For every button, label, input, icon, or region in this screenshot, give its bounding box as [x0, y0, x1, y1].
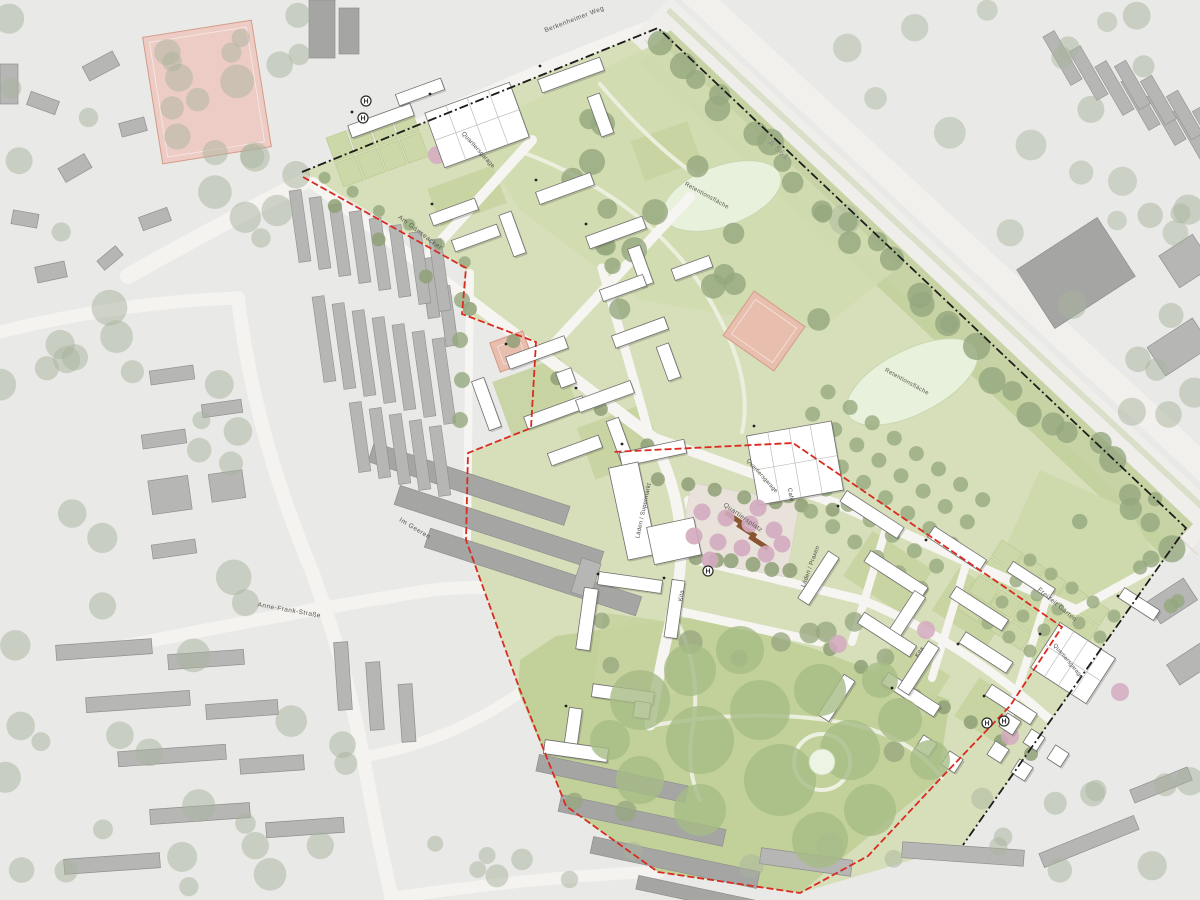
tree: [92, 290, 128, 326]
tree: [1159, 303, 1184, 328]
plaza-pink-tree: [710, 534, 727, 551]
tree: [1118, 398, 1146, 426]
tree: [164, 123, 190, 149]
street-tree: [651, 472, 665, 486]
orchard-tree: [909, 446, 924, 461]
park-tree-canopy: [674, 784, 726, 836]
bus-stop-letter: H: [705, 568, 710, 575]
plaza-pink-tree: [758, 546, 775, 563]
bus-stop-icon: H: [999, 716, 1009, 726]
entrance-dot: [535, 179, 538, 182]
garden-tree: [1017, 610, 1030, 623]
entrance-dot: [925, 539, 928, 542]
park-tree-canopy: [878, 698, 922, 742]
street-tree: [373, 205, 385, 217]
tree: [1120, 498, 1142, 520]
bus-stop-icon: H: [358, 113, 368, 123]
park-tree-canopy: [862, 662, 898, 698]
entrance-dot: [891, 687, 894, 690]
tree: [934, 117, 966, 149]
tree: [1051, 47, 1073, 69]
tree: [205, 370, 234, 399]
tree: [452, 412, 468, 428]
garden-tree: [1024, 645, 1037, 658]
tree: [1154, 773, 1177, 796]
street-tree: [681, 477, 695, 491]
street-tree: [419, 270, 433, 284]
orchard-tree: [871, 453, 886, 468]
tree: [1163, 220, 1189, 246]
orchard-tree: [847, 535, 862, 550]
park-tree-canopy: [590, 720, 630, 760]
tree: [1, 78, 22, 99]
tree: [615, 801, 636, 822]
entrance-dot: [539, 65, 542, 68]
orchard-tree: [865, 415, 880, 430]
orchard-tree: [975, 492, 990, 507]
tree: [230, 202, 261, 233]
entrance-dot: [565, 705, 568, 708]
entrance-dot: [663, 577, 666, 580]
tree: [864, 87, 887, 110]
tree: [452, 332, 468, 348]
tree: [469, 861, 486, 878]
park-pond: [809, 749, 835, 775]
bus-stop-icon: H: [361, 96, 371, 106]
garden-tree: [1045, 568, 1058, 581]
plaza-pink-tree: [686, 528, 703, 545]
tree: [1133, 55, 1155, 77]
tree: [838, 212, 857, 231]
tree: [6, 712, 35, 741]
tree: [6, 147, 33, 174]
tree: [1016, 130, 1047, 161]
tree: [602, 657, 619, 674]
bus-stop-letter: H: [360, 115, 365, 122]
orchard-tree: [916, 484, 931, 499]
tree: [135, 739, 163, 767]
pink-flowering-tree: [917, 621, 935, 639]
context-building: [148, 475, 192, 514]
street-tree: [764, 562, 779, 577]
tree: [161, 96, 184, 119]
park-tree-canopy: [616, 756, 664, 804]
park-tree-canopy: [794, 664, 846, 716]
tree: [262, 195, 293, 226]
tree: [884, 741, 905, 762]
tree: [782, 172, 804, 194]
garden-tree: [1108, 610, 1121, 623]
garden-tree: [1024, 554, 1037, 567]
garden-tree: [1066, 582, 1079, 595]
tree: [35, 356, 59, 380]
bus-stop-letter: H: [984, 720, 989, 727]
entrance-dot: [1039, 633, 1042, 636]
orchard-tree: [849, 437, 864, 452]
context-building: [309, 0, 335, 58]
street-tree: [737, 490, 751, 504]
orchard-tree: [856, 475, 871, 490]
tree: [1123, 2, 1151, 30]
orchard-tree: [931, 462, 946, 477]
tree: [9, 857, 35, 883]
tree: [192, 411, 210, 429]
tree: [1058, 291, 1086, 319]
pink-flowering-tree: [1111, 683, 1129, 701]
garden-tree: [996, 596, 1009, 609]
tree: [167, 842, 197, 872]
tree: [485, 864, 508, 887]
tree: [87, 523, 117, 553]
tree: [454, 372, 470, 388]
orchard-tree: [938, 499, 953, 514]
tree: [701, 274, 726, 299]
tree: [901, 14, 928, 41]
tree: [224, 417, 253, 446]
tree: [241, 142, 270, 171]
tree: [997, 219, 1024, 246]
entrance-dot: [1117, 595, 1120, 598]
tree: [1048, 858, 1073, 883]
entrance-dot: [351, 111, 354, 114]
orchard-tree: [821, 385, 836, 400]
tree: [1056, 422, 1078, 444]
street-tree: [724, 553, 739, 568]
park-tree-canopy: [844, 784, 896, 836]
tree: [221, 43, 241, 63]
tree: [1141, 513, 1160, 532]
orchard-tree: [887, 431, 902, 446]
tree: [285, 3, 310, 28]
entrance-dot: [597, 573, 600, 576]
tree: [561, 871, 578, 888]
tree: [705, 96, 731, 122]
tree: [609, 298, 630, 319]
tree: [275, 705, 307, 737]
bus-stop-letter: H: [363, 98, 368, 105]
street-tree: [782, 563, 797, 578]
tree: [1171, 594, 1185, 608]
tree: [79, 108, 98, 127]
street-tree: [328, 199, 342, 213]
pink-flowering-tree: [829, 635, 847, 653]
plaza-pink-tree: [694, 504, 711, 521]
garden-tree: [1003, 631, 1016, 644]
park-tree-canopy: [716, 626, 764, 674]
tree: [479, 847, 496, 864]
tree: [186, 88, 209, 111]
tree: [579, 149, 605, 175]
tree: [1044, 792, 1067, 815]
plaza-pink-tree: [734, 540, 751, 557]
tree: [334, 752, 357, 775]
tree: [0, 630, 30, 660]
tree: [1069, 160, 1093, 184]
park-tree-canopy: [730, 680, 790, 740]
tree: [963, 333, 990, 360]
orchard-tree: [894, 468, 909, 483]
garden-tree: [1087, 596, 1100, 609]
tree: [121, 360, 144, 383]
tree: [232, 589, 259, 616]
tree: [203, 140, 228, 165]
tree: [1158, 535, 1185, 562]
tree: [1077, 96, 1104, 123]
entrance-dot: [837, 505, 840, 508]
plaza-pink-tree: [750, 500, 767, 517]
entrance-dot: [505, 343, 508, 346]
tree: [1097, 12, 1117, 32]
tree: [1138, 851, 1167, 880]
tree: [100, 320, 133, 353]
tree: [1155, 401, 1182, 428]
tree: [838, 231, 861, 254]
tree: [833, 34, 862, 63]
tree: [58, 499, 87, 528]
site-plan-page: HHHHH Berkenheimer WegA 561Quartiersgara…: [0, 0, 1200, 900]
tree: [1107, 211, 1127, 231]
orchard-tree: [953, 477, 968, 492]
tree: [648, 31, 673, 56]
tree: [642, 199, 668, 225]
tree: [686, 70, 705, 89]
park-tree-canopy: [792, 812, 848, 868]
tree: [242, 832, 269, 859]
plaza-pink-tree: [774, 536, 791, 553]
tree: [282, 161, 310, 189]
entrance-dot: [621, 443, 624, 446]
tree: [940, 315, 958, 333]
orchard-tree: [929, 559, 944, 574]
tree: [52, 222, 71, 241]
tree: [994, 828, 1013, 847]
tree: [1085, 780, 1106, 801]
tree: [566, 793, 583, 810]
street-tree: [708, 483, 722, 497]
tree: [254, 858, 287, 891]
orchard-tree: [825, 519, 840, 534]
tree: [187, 438, 212, 463]
tree: [604, 258, 620, 274]
tree: [1108, 167, 1137, 196]
tree: [885, 850, 903, 868]
tree: [1017, 402, 1042, 427]
bus-stop-icon: H: [703, 566, 713, 576]
tree: [723, 223, 744, 244]
bus-stop-icon: H: [982, 718, 992, 728]
entrance-dot: [431, 203, 434, 206]
orchard-tree: [805, 407, 820, 422]
tree: [106, 722, 134, 750]
tree: [427, 836, 443, 852]
orchard-tree: [843, 400, 858, 415]
tree: [979, 367, 1006, 394]
tree: [251, 228, 270, 247]
orchard-tree: [960, 514, 975, 529]
tree: [597, 199, 617, 219]
tree: [1133, 560, 1147, 574]
bus-stop-letter: H: [1001, 718, 1006, 725]
tree: [977, 0, 998, 21]
tree: [739, 854, 763, 878]
entrance-dot: [983, 695, 986, 698]
entrance-dot: [585, 223, 588, 226]
tree: [220, 65, 254, 99]
tree: [624, 842, 643, 861]
orchard-tree: [907, 543, 922, 558]
tree: [198, 175, 232, 209]
tree: [31, 732, 50, 751]
tree: [910, 292, 935, 317]
entrance-dot: [429, 93, 432, 96]
tree: [1138, 203, 1163, 228]
tree: [1002, 381, 1022, 401]
tree: [182, 789, 215, 822]
context-building: [339, 8, 359, 54]
tree: [814, 205, 832, 223]
tree: [266, 51, 293, 78]
tree: [1072, 514, 1087, 529]
street-tree: [506, 334, 520, 348]
tree: [219, 451, 243, 475]
garden-tree: [1094, 631, 1107, 644]
entrance-dot: [957, 643, 960, 646]
park-tree-canopy: [666, 706, 734, 774]
tree: [687, 155, 709, 177]
tree: [162, 52, 182, 72]
street-tree: [372, 232, 386, 246]
tree: [799, 623, 820, 644]
park-tree-canopy: [664, 644, 716, 696]
entrance-dot: [575, 387, 578, 390]
park-tree-canopy: [744, 744, 816, 816]
tree: [89, 592, 116, 619]
street-tree: [964, 715, 978, 729]
tree: [177, 639, 211, 673]
tree: [771, 632, 791, 652]
site-plan-svg: HHHHH Berkenheimer WegA 561Quartiersgara…: [0, 0, 1200, 900]
orchard-tree: [803, 504, 818, 519]
tree: [1145, 358, 1168, 381]
entrance-dot: [753, 425, 756, 428]
street-tree: [746, 557, 761, 572]
tree: [807, 308, 830, 331]
street-tree: [347, 186, 359, 198]
tree: [179, 877, 198, 896]
tree: [93, 819, 113, 839]
tree: [55, 859, 78, 882]
park-tree-canopy: [610, 670, 670, 730]
tree: [235, 813, 256, 834]
tree: [511, 849, 533, 871]
tree: [307, 832, 334, 859]
street-tree: [319, 172, 331, 184]
